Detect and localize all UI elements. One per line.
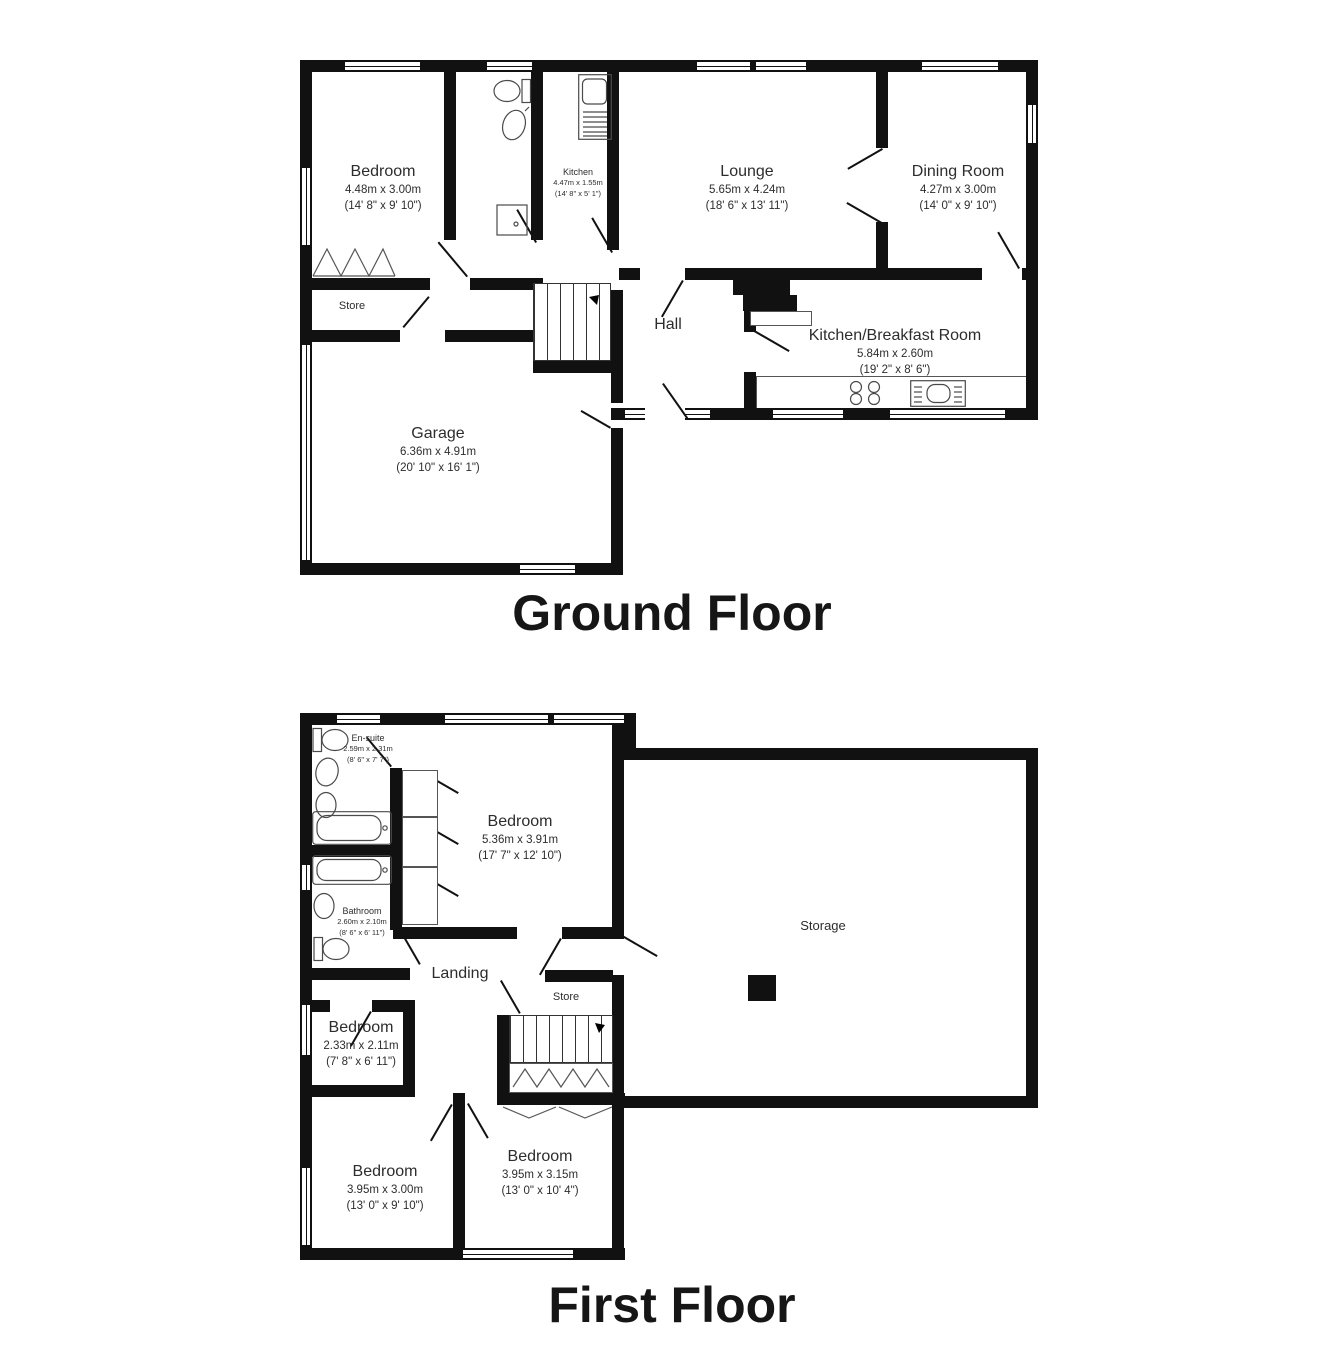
room-label-bedroom-master: Bedroom 5.36m x 3.91m (17' 7" x 12' 10") [478,812,562,864]
toilet-fixture [313,936,351,967]
floorplan-canvas: Bedroom 4.48m x 3.00m (14' 8" x 9' 10") … [0,0,1320,1351]
first-floor-title: First Floor [548,1276,795,1334]
room-name: Bedroom [346,1162,423,1182]
room-name: Storage [800,918,846,934]
room-dims-metric: 3.95m x 3.15m [501,1167,578,1183]
room-dims-imperial: (7' 8" x 6' 11") [323,1054,398,1070]
sink-fixture [310,891,338,926]
room-name: En-suite [343,733,393,744]
room-dims-imperial: (17' 7" x 12' 10") [478,848,562,864]
room-label-bedroom-middle: Bedroom 3.95m x 3.15m (13' 0" x 10' 4") [501,1147,578,1199]
stairs-direction-arrow [509,1015,613,1063]
wardrobe [402,867,438,925]
room-dims-metric: 5.36m x 3.91m [478,832,562,848]
bath-fixture [312,855,392,890]
room-label-store: Store [553,991,579,1005]
closet-bifold-doors [502,1106,614,1125]
room-dims-metric: 2.33m x 2.11m [323,1038,398,1054]
wardrobe [402,770,438,817]
room-dims-imperial: (8' 6" x 6' 11") [337,928,387,939]
room-dims-imperial: (13' 0" x 9' 10") [346,1198,423,1214]
first-floor-plan: En-suite 2.59m x 2.31m (8' 6" x 7' 7") B… [0,0,1320,1351]
room-name: Bedroom [501,1147,578,1167]
room-name: Bathroom [337,906,387,917]
wardrobe-rail [512,1066,610,1095]
room-dims-metric: 2.60m x 2.10m [337,917,387,928]
room-name: Bedroom [323,1018,398,1038]
room-label-landing: Landing [432,964,489,984]
room-dims-metric: 3.95m x 3.00m [346,1182,423,1198]
room-name: Store [553,991,579,1005]
room-name: Bedroom [478,812,562,832]
wardrobe [402,817,438,867]
room-dims-metric: 2.59m x 2.31m [343,744,393,755]
room-dims-imperial: (13' 0" x 10' 4") [501,1183,578,1199]
bath-fixture [312,811,392,850]
room-label-en-suite: En-suite 2.59m x 2.31m (8' 6" x 7' 7") [343,733,393,765]
room-name: Landing [432,964,489,984]
room-label-bathroom: Bathroom 2.60m x 2.10m (8' 6" x 6' 11") [337,906,387,938]
room-label-bedroom-small: Bedroom 2.33m x 2.11m (7' 8" x 6' 11") [323,1018,398,1070]
room-label-bedroom-left: Bedroom 3.95m x 3.00m (13' 0" x 9' 10") [346,1162,423,1214]
room-dims-imperial: (8' 6" x 7' 7") [343,755,393,766]
sink-fixture [312,755,342,794]
room-label-storage: Storage [800,918,846,934]
chimney-stack [748,975,776,1001]
